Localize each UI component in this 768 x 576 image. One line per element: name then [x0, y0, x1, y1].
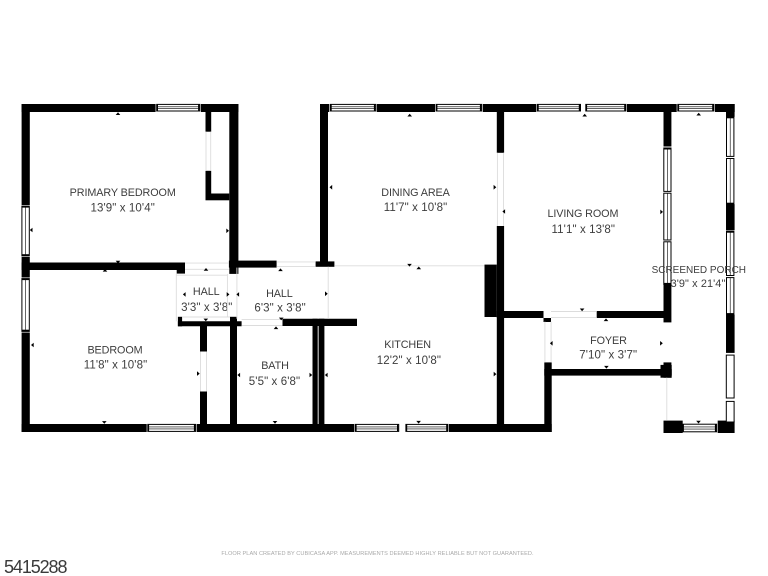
svg-text:BEDROOM: BEDROOM — [87, 345, 142, 357]
svg-text:BATH: BATH — [261, 360, 289, 372]
svg-text:13'9" x 10'4": 13'9" x 10'4" — [91, 202, 155, 214]
svg-text:3'3" x 3'8": 3'3" x 3'8" — [181, 302, 232, 314]
svg-text:11'7" x 10'8": 11'7" x 10'8" — [384, 202, 448, 214]
svg-text:SCREENED PORCH: SCREENED PORCH — [652, 265, 746, 276]
svg-text:PRIMARY BEDROOM: PRIMARY BEDROOM — [70, 187, 176, 199]
svg-text:FOYER: FOYER — [590, 335, 627, 347]
svg-text:5'5" x 6'8": 5'5" x 6'8" — [249, 376, 300, 388]
svg-text:12'2" x 10'8": 12'2" x 10'8" — [377, 355, 441, 367]
svg-text:DINING AREA: DINING AREA — [381, 187, 450, 199]
svg-text:HALL: HALL — [266, 288, 293, 300]
svg-text:7'10" x 3'7": 7'10" x 3'7" — [579, 350, 637, 362]
svg-text:11'1" x 13'8": 11'1" x 13'8" — [552, 224, 616, 236]
svg-text:11'8" x 10'8": 11'8" x 10'8" — [84, 360, 148, 372]
svg-text:3'9" x 21'4": 3'9" x 21'4" — [671, 278, 726, 290]
svg-text:LIVING ROOM: LIVING ROOM — [547, 208, 618, 220]
svg-text:HALL: HALL — [193, 286, 220, 298]
svg-text:6'3" x 3'8": 6'3" x 3'8" — [254, 302, 305, 314]
svg-text:KITCHEN: KITCHEN — [384, 339, 431, 351]
